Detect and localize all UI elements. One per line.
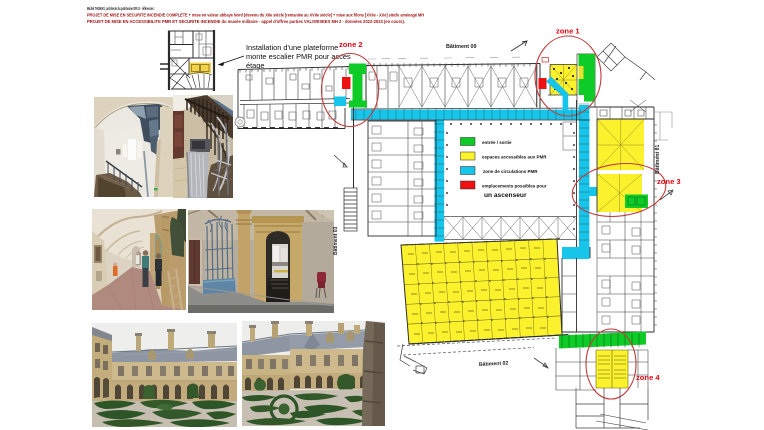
svg-text:zone 1: zone 1 bbox=[556, 27, 580, 36]
svg-text:espaces accessibles aux PMR: espaces accessibles aux PMR bbox=[482, 155, 547, 160]
svg-text:zone de circulations PMR: zone de circulations PMR bbox=[483, 169, 538, 174]
svg-text:zone 4: zone 4 bbox=[636, 373, 660, 382]
svg-text:zone 2: zone 2 bbox=[339, 40, 363, 49]
svg-text:monte escalier PMR pour accès: monte escalier PMR pour accès bbox=[246, 52, 351, 61]
svg-text:Bâtiment 02: Bâtiment 02 bbox=[479, 360, 509, 368]
svg-text:emplacements possibles pour: emplacements possibles pour bbox=[482, 184, 547, 189]
svg-text:Bâtiment 09: Bâtiment 09 bbox=[446, 44, 477, 50]
svg-text:zone 3: zone 3 bbox=[657, 177, 681, 186]
svg-text:entrée / sortie: entrée / sortie bbox=[482, 140, 512, 145]
svg-text:Bâtiment 03: Bâtiment 03 bbox=[333, 226, 339, 255]
svg-text:un ascenseur: un ascenseur bbox=[484, 192, 527, 199]
svg-text:Installation d'une plateforme: Installation d'une plateforme bbox=[246, 43, 338, 52]
